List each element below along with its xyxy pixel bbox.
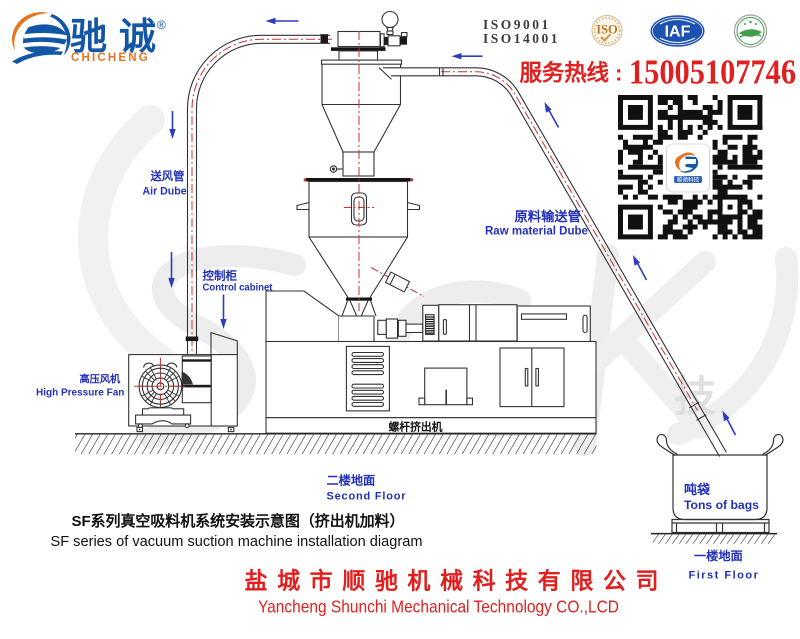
svg-text:ISO: ISO	[596, 23, 618, 37]
svg-text:Second Floor: Second Floor	[327, 491, 407, 503]
svg-text:高压风机: 高压风机	[80, 373, 122, 386]
svg-text:First Floor: First Floor	[689, 570, 760, 582]
svg-text:Raw material Dube: Raw material Dube	[485, 226, 588, 238]
svg-text:Control cabinet: Control cabinet	[203, 282, 273, 294]
svg-text:顺驰科技: 顺驰科技	[677, 176, 700, 184]
svg-text:控制柜: 控制柜	[203, 269, 238, 283]
svg-text:ISO14001: ISO14001	[483, 31, 560, 46]
svg-text:SF系列真空吸料机系统安装示意图（挤出机加料）: SF系列真空吸料机系统安装示意图（挤出机加料）	[72, 512, 405, 530]
svg-text:ISO9001: ISO9001	[483, 17, 551, 32]
svg-text:15005107746: 15005107746	[629, 53, 796, 92]
svg-text:®: ®	[157, 18, 166, 32]
svg-text:螺杆挤出机: 螺杆挤出机	[389, 420, 443, 434]
svg-text:Air Dube: Air Dube	[143, 186, 187, 198]
svg-text:IAF: IAF	[665, 24, 691, 41]
svg-text:原料输送管: 原料输送管	[515, 208, 581, 224]
svg-text:SF series of vacuum suction ma: SF series of vacuum suction machine inst…	[51, 534, 423, 550]
svg-text:服务热线 :: 服务热线 :	[520, 60, 623, 86]
svg-text:High Pressure Fan: High Pressure Fan	[36, 388, 124, 399]
svg-text:一楼地面: 一楼地面	[694, 548, 743, 563]
svg-text:CHICHENG: CHICHENG	[71, 52, 150, 64]
svg-text:送风管: 送风管	[150, 169, 185, 183]
svg-text:Tons of bags: Tons of bags	[684, 498, 759, 512]
svg-text:吨袋: 吨袋	[684, 482, 711, 497]
svg-text:Yancheng Shunchi Mechanical Te: Yancheng Shunchi Mechanical Technology C…	[258, 597, 619, 617]
svg-text:驰诚: 驰诚	[70, 16, 168, 57]
svg-text:二楼地面: 二楼地面	[327, 473, 376, 488]
